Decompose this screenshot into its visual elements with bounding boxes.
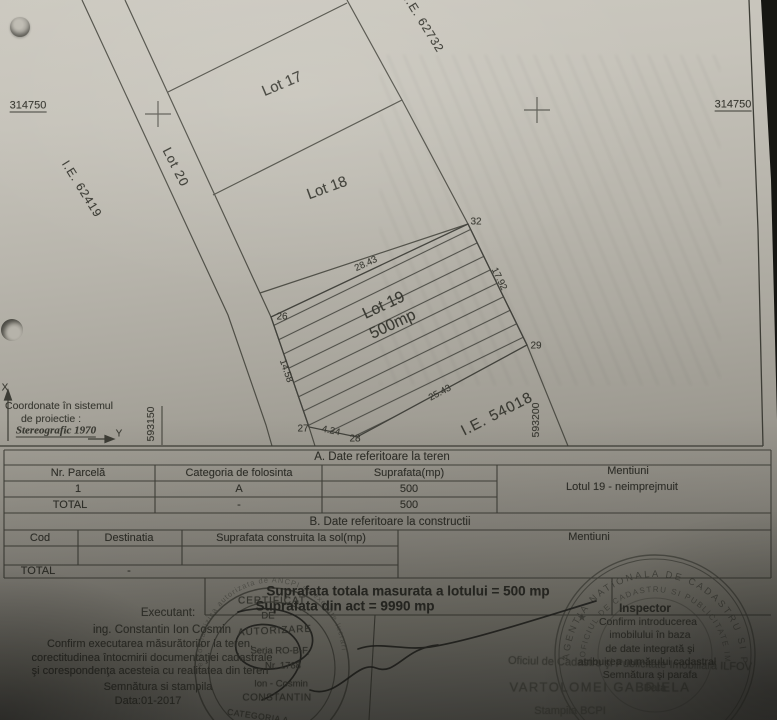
section-b-title: B. Date referitoare la constructii [309, 516, 470, 528]
cell-suprafata-500: 500 [400, 483, 418, 495]
stamp-cert-name2: CONSTANTIN [242, 693, 311, 704]
inspector-confirm-1: Confirm introducerea [599, 616, 697, 628]
stamp-cert-number: Nr. 1768 [265, 661, 301, 672]
vertex-26: 26 [276, 312, 287, 323]
col-destinatia: Destinatia [105, 532, 154, 544]
axis-y-label: Y [116, 429, 123, 440]
inspector-confirm-3: de date integrată şi [605, 643, 694, 655]
executant-date: Data:01-2017 [115, 695, 182, 707]
inspector-title: Inspector [619, 603, 671, 615]
row-a-total-dash: - [237, 499, 241, 511]
grid-label-593150: 593150 [145, 406, 157, 441]
summary-measured-area: Suprafata totala masurata a lotului = 50… [266, 584, 549, 599]
legend-projection: Stereografic 1970 [16, 425, 96, 438]
legend-line2: de proiectie : [21, 413, 81, 425]
photo-background [761, 0, 777, 420]
vertex-29: 29 [530, 341, 541, 352]
vertex-28: 28 [349, 434, 360, 445]
col-cod: Cod [30, 532, 50, 544]
stamp-cert-line1: CERTIFICAT [238, 596, 306, 607]
col-nr-parcela: Nr. Parcelă [51, 467, 105, 479]
star-icon: ★ [577, 612, 587, 624]
grid-label-314750-left: 314750 [10, 100, 47, 113]
section-a-title: A. Date referitoare la teren [314, 451, 450, 463]
legend-line1: Coordonate în sistemul [5, 400, 113, 412]
grid-label-314750-right: 314750 [715, 99, 752, 112]
col-mentiuni-a: Mentiuni [607, 465, 649, 477]
vertex-27: 27 [297, 424, 308, 435]
executant-name: ing. Constantin Ion Cosmin [93, 624, 231, 636]
executant-confirm-2: corectitudinea întocmirii documentaţiei … [32, 652, 273, 664]
vertex-32: 32 [470, 217, 481, 228]
executant-signature-label: Semnătura si stampila [104, 681, 213, 693]
stamp-cert-name1: Ion - Cosmin [254, 679, 308, 690]
inspector-name: VARTOLOMEI GABRIELA [510, 680, 691, 695]
grid-label-593200: 593200 [530, 402, 542, 437]
col-mentiuni-b: Mentiuni [568, 531, 610, 543]
cell-parcela-1: 1 [75, 483, 81, 495]
cell-categoria-a: A [235, 483, 242, 495]
grid-cross-icons [145, 97, 550, 127]
row-b-total-label: TOTAL [21, 565, 55, 577]
cell-mentiuni-value: Lotul 19 - neimprejmuit [566, 481, 678, 493]
row-a-total-label: TOTAL [53, 499, 87, 511]
executant-confirm-1: Confirm executarea măsurătorilor la tere… [47, 638, 253, 650]
stamp-cert-series: Seria RO-B-F, [250, 646, 309, 657]
row-a-total-value: 500 [400, 499, 418, 511]
inspector-confirm-4: atribuirea numărului cadastral [578, 656, 716, 668]
col-suprafata-construita: Suprafata construita la sol(mp) [216, 532, 366, 544]
executant-label: Executant: [141, 607, 195, 619]
scanned-cadastral-document: AGENTIA NATIONALA DE CADASTRU SI PUBLICI… [0, 0, 777, 720]
inspector-confirm-2: imobilului în baza [609, 629, 690, 641]
axis-x-label: X [2, 383, 9, 394]
row-b-total-dash: - [127, 565, 131, 577]
col-suprafata: Suprafata(mp) [374, 467, 444, 479]
executant-confirm-3: şi corespondenţa acesteia cu realitatea … [32, 665, 269, 677]
col-categoria: Categoria de folosinta [185, 467, 292, 479]
stamp-cert-line2: DE [261, 611, 274, 622]
bcpi-stamp-label: Stampila BCPI [534, 705, 606, 717]
